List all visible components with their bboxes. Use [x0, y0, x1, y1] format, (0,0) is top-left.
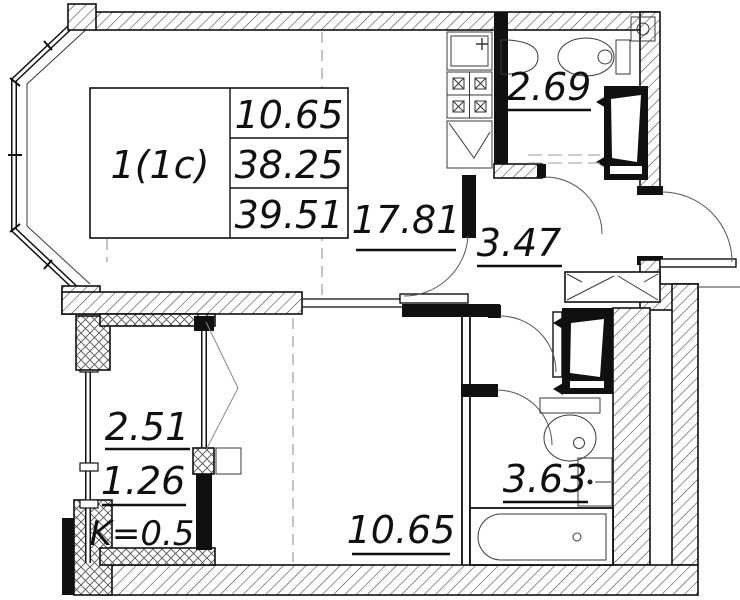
bathroom-area-label: 3.63 [503, 457, 588, 501]
bedroom-area-label: 10.65 [347, 508, 456, 552]
bottom-wall [100, 565, 698, 595]
stamp-table: 1(1c) 10.65 38.25 39.51 [90, 88, 348, 238]
vent-shaft-icon [553, 308, 613, 395]
door-leaf [660, 259, 736, 267]
stamp-apartment-area: 38.25 [235, 143, 344, 187]
balcony-counted-area-label: 1.26 [101, 459, 186, 503]
balcony-coefficient-label: K=0.5 [90, 514, 195, 554]
living-kitchen-area-label: 17.81 [352, 198, 461, 242]
hall-wardrobe [565, 272, 660, 302]
hall-area-label: 3.47 [477, 221, 562, 265]
bathroom-right-wall [613, 308, 650, 565]
right-wall-lower [672, 284, 698, 565]
bathtub-icon [470, 508, 613, 565]
wc-area-label: 2.69 [507, 65, 592, 109]
stamp-total-area: 39.51 [235, 193, 344, 237]
top-wall [95, 12, 658, 30]
stove-icon [447, 72, 492, 118]
bay-pier-top [68, 4, 96, 30]
hall-partition-wall [462, 175, 476, 238]
apartment-number: 1(1c) [111, 143, 210, 187]
stamp-living-area: 10.65 [235, 93, 344, 137]
floor-plan-drawing: 1(1c) 10.65 38.25 39.51 17.81 2.69 3.47 … [0, 0, 740, 600]
balcony-area-label: 2.51 [105, 405, 190, 449]
floor-plan: 1(1c) 10.65 38.25 39.51 17.81 2.69 3.47 … [0, 0, 740, 600]
